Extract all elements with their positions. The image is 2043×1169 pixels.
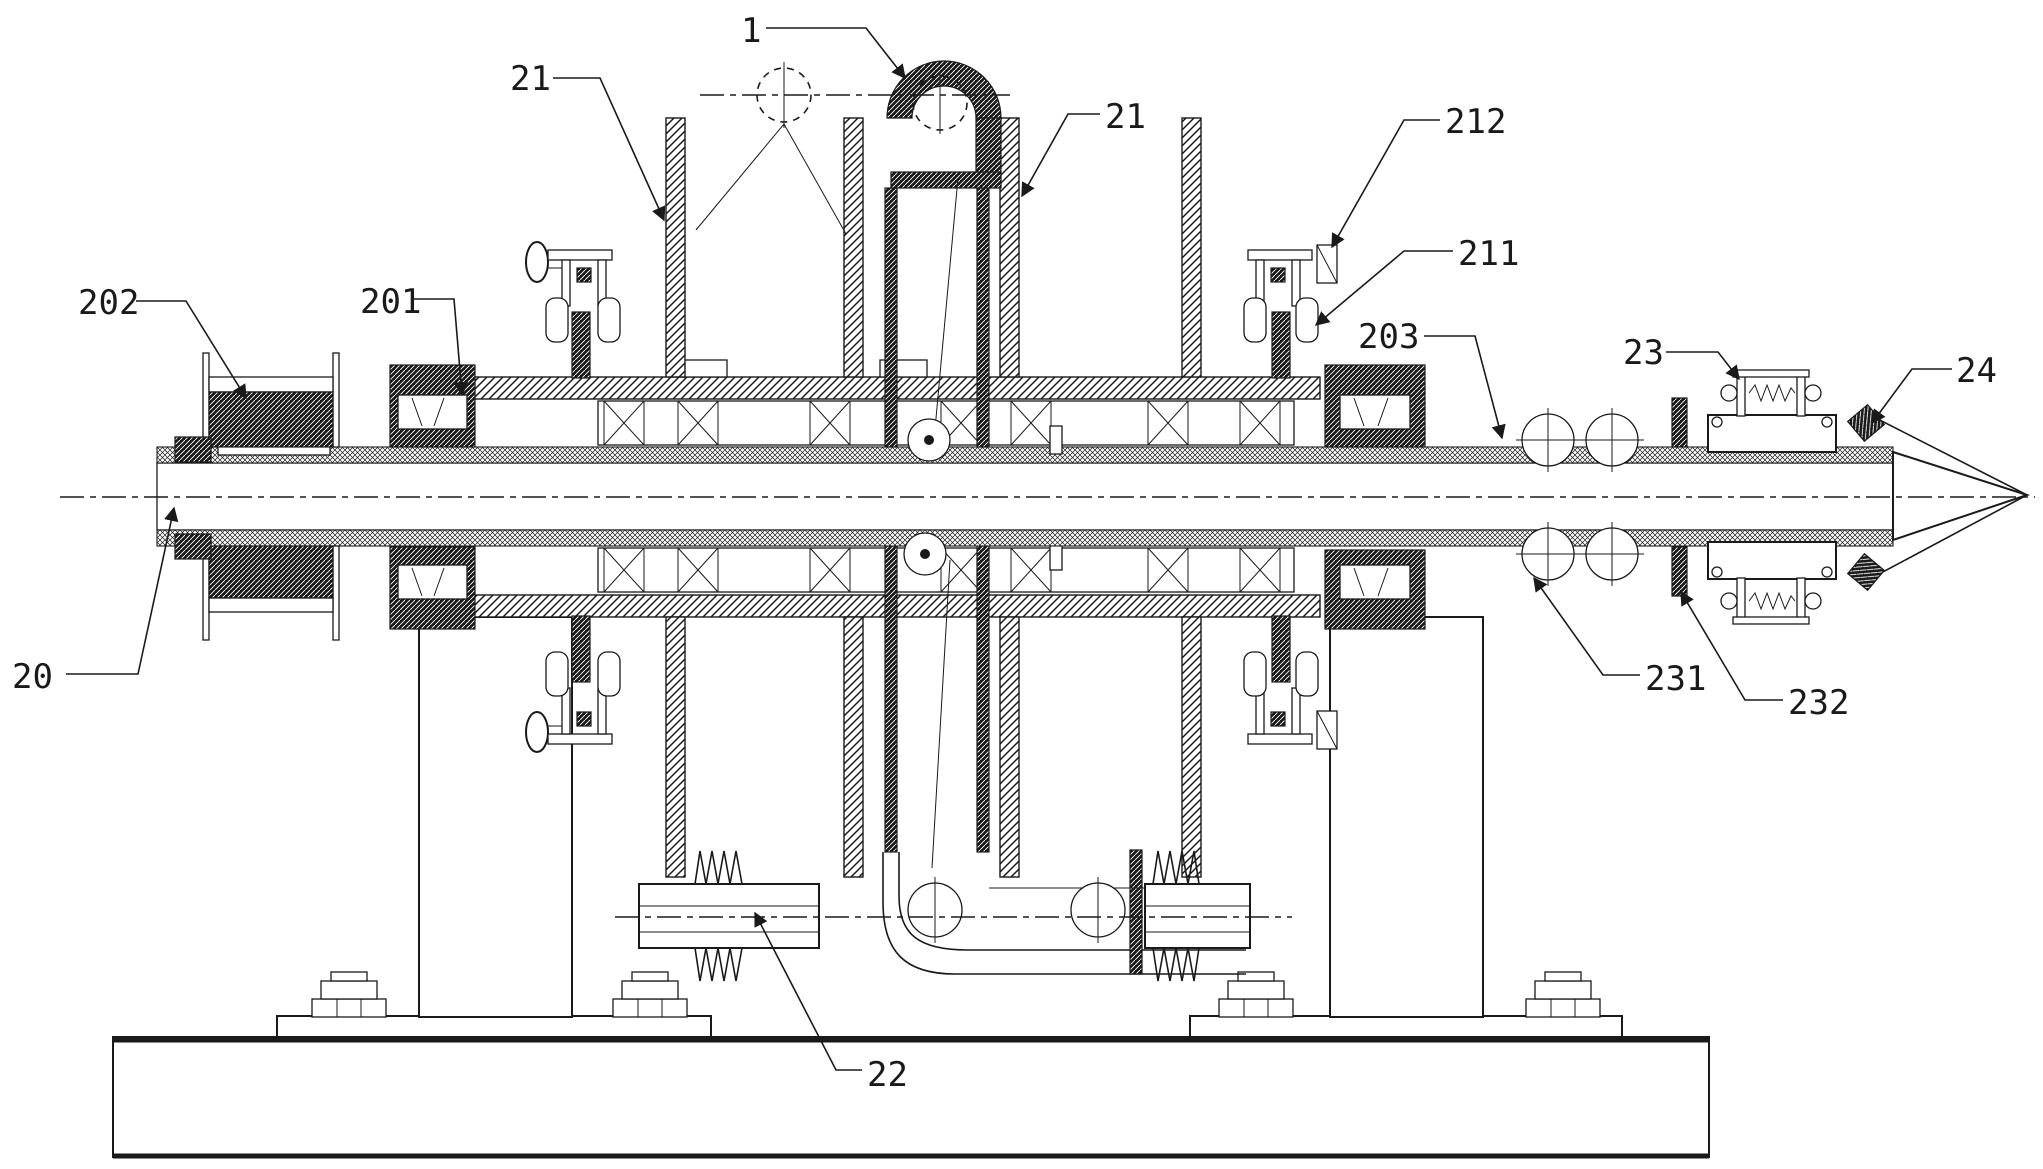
clamp-screw	[1271, 268, 1285, 282]
base-assembly	[113, 617, 1709, 1157]
clamp-handwheel	[526, 242, 548, 282]
support-plate-21	[844, 118, 863, 377]
part-label-231: 231	[1645, 659, 1706, 699]
frame-pin	[1050, 426, 1062, 454]
right-pedestal	[1330, 617, 1483, 1017]
pulley-groove	[695, 948, 742, 981]
part-label-23: 23	[1623, 333, 1664, 373]
spool-hub	[175, 437, 211, 462]
leader-line-1	[766, 28, 905, 78]
part-label-22: 22	[867, 1055, 908, 1095]
spring-clamp-23-bottom	[1708, 542, 1836, 624]
bend-divider	[1130, 850, 1142, 974]
part-label-211: 211	[1458, 234, 1519, 274]
guide-tube-wall	[977, 546, 989, 852]
clamp-jaw	[546, 298, 568, 342]
guide-tube-wall	[885, 546, 897, 852]
v-belt-pulley-22	[639, 884, 819, 948]
support-plate-lower	[1000, 617, 1019, 877]
anchor-bolt	[312, 972, 386, 1017]
support-plate-lower	[1182, 617, 1201, 877]
right-foot-plate	[1190, 1016, 1622, 1037]
left-foot-plate	[277, 1016, 711, 1037]
hook-right-wall	[976, 118, 1001, 174]
part-label-21-left: 21	[510, 59, 551, 99]
anchor-bolt	[1219, 972, 1293, 1017]
leader-line-23	[1666, 352, 1739, 379]
leader-line-231	[1534, 578, 1640, 675]
part-label-21-right: 21	[1105, 97, 1146, 137]
part-label-201: 201	[360, 282, 421, 322]
support-plate-lower	[844, 617, 863, 877]
clamp-jaw-211	[1244, 298, 1266, 342]
clamp-column	[572, 312, 590, 378]
hook-cap	[891, 172, 1001, 188]
wire-line	[696, 124, 784, 230]
spool-flange	[203, 353, 209, 447]
v-belt-pulley-right	[1145, 884, 1250, 948]
clamp-jaw-211	[1296, 298, 1318, 342]
pulley-groove	[695, 851, 742, 884]
anchor-bolt	[613, 972, 687, 1017]
spring-clamp-23-top	[1708, 370, 1836, 452]
support-plate-lower	[666, 617, 685, 877]
part-label-203: 203	[1358, 317, 1419, 357]
guide-tube-wall	[885, 188, 897, 447]
part-label-202: 202	[78, 283, 139, 323]
support-plate-21	[1000, 118, 1019, 377]
clamp-unit-lower-right	[1244, 616, 1337, 749]
clamp-jaw	[598, 298, 620, 342]
pulley-groove	[1153, 948, 1199, 981]
upper-frame	[390, 118, 1425, 454]
leader-line-212	[1332, 120, 1440, 247]
spool-flange	[203, 546, 209, 640]
wedge-pad-24	[1848, 405, 1885, 442]
spring	[1749, 385, 1795, 401]
spool-flange	[333, 546, 339, 640]
spring	[1749, 593, 1795, 609]
diagram-canvas: 1212121221120320220120222324231232	[0, 0, 2043, 1169]
leader-line-203	[1424, 336, 1502, 438]
clamp-unit-upper-left	[526, 242, 620, 378]
patent-figure: 1212121221120320220120222324231232	[0, 0, 2043, 1169]
stop-pin-232	[1672, 547, 1687, 596]
part-label-24: 24	[1956, 351, 1997, 391]
hook-bend	[887, 61, 1001, 118]
spool-hub	[175, 534, 211, 559]
clamp-unit-upper-right	[1244, 245, 1337, 378]
part-label-1: 1	[741, 11, 761, 51]
stop-pin-232	[1672, 398, 1687, 447]
leader-line-24	[1872, 369, 1952, 423]
wedge-pad-24	[1848, 554, 1885, 591]
part-label-212: 212	[1445, 102, 1506, 142]
cone-tip-24	[1893, 452, 2027, 540]
leader-line-21-right	[1022, 114, 1100, 196]
part-label-20: 20	[12, 657, 53, 697]
leader-line-21-left	[553, 78, 664, 220]
clamp-column	[1272, 312, 1290, 378]
wire-line	[784, 124, 846, 234]
clamp-screw	[577, 268, 591, 282]
part-label-232: 232	[1788, 683, 1849, 723]
guide-tube-wall	[977, 188, 989, 447]
spool-flange	[333, 353, 339, 447]
support-plate-21	[666, 118, 685, 377]
support-plate-21	[1182, 118, 1201, 377]
anchor-bolt	[1526, 972, 1600, 1017]
spool-winding-lower	[209, 546, 333, 598]
spool-winding-upper	[209, 392, 333, 447]
base-plate	[113, 1037, 1709, 1157]
